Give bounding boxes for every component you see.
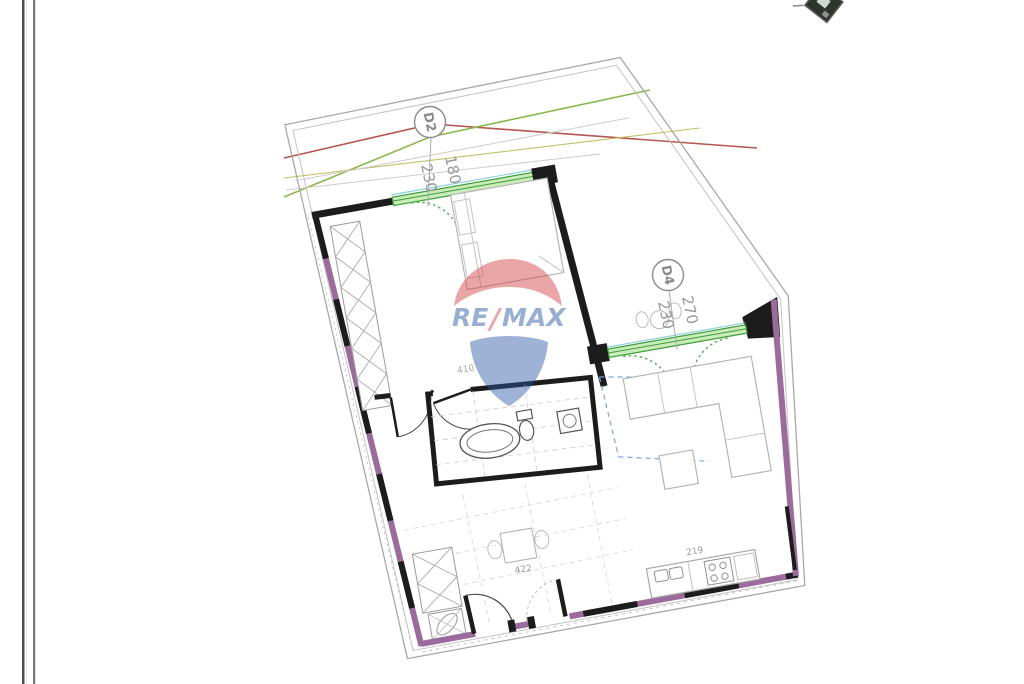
watermark-slash: /	[487, 302, 503, 335]
left-border-line-outer	[22, 0, 25, 684]
door-jamb-1	[507, 619, 516, 632]
terrace-chair-left	[635, 311, 650, 329]
balloon-bottom-blue	[470, 336, 548, 406]
floorplan-drawing: 410	[0, 0, 1024, 684]
living-window-midline	[608, 329, 746, 353]
second-door-leaf	[558, 579, 566, 617]
scanned-floorplan-page: 410	[0, 0, 1024, 684]
entrance-door-leaf	[465, 595, 474, 634]
d4-width: 270	[678, 294, 702, 326]
terrace-bottom-dots	[422, 580, 802, 652]
page-left-border	[22, 0, 35, 684]
washing-machine	[557, 408, 582, 433]
dining-table	[500, 528, 537, 563]
hallway-dimension: 422	[514, 564, 533, 577]
left-border-line-inner	[33, 0, 35, 684]
watermark-prefix: RE	[452, 303, 488, 332]
bedroom-door-leaf	[391, 397, 398, 436]
compass-icon	[793, 0, 843, 29]
bedroom-bottom-wall-left	[375, 395, 391, 399]
d2-width: 180	[441, 154, 465, 186]
hallway: 422	[400, 467, 643, 642]
d4-jamb-left	[587, 343, 610, 364]
bedroom-top-wall-left	[312, 201, 395, 216]
left-border-gap	[26, 0, 27, 684]
hall-wardrobe	[412, 547, 462, 613]
kitchen-dimension: 219	[686, 546, 705, 559]
toilet-bowl	[518, 419, 535, 441]
toilet-tank	[516, 409, 532, 420]
roof-line-red	[284, 124, 757, 158]
watermark-suffix: MAX	[502, 303, 567, 332]
couch	[623, 356, 771, 493]
bathroom-door-leaf	[432, 390, 472, 404]
dining-chair-left	[486, 540, 503, 560]
bathroom-door-arc	[433, 398, 470, 435]
coffee-table	[659, 450, 698, 489]
roof-line-olive	[284, 128, 700, 178]
floor-plan: 410	[283, 36, 838, 663]
bedroom-dimension: 410	[456, 364, 475, 377]
